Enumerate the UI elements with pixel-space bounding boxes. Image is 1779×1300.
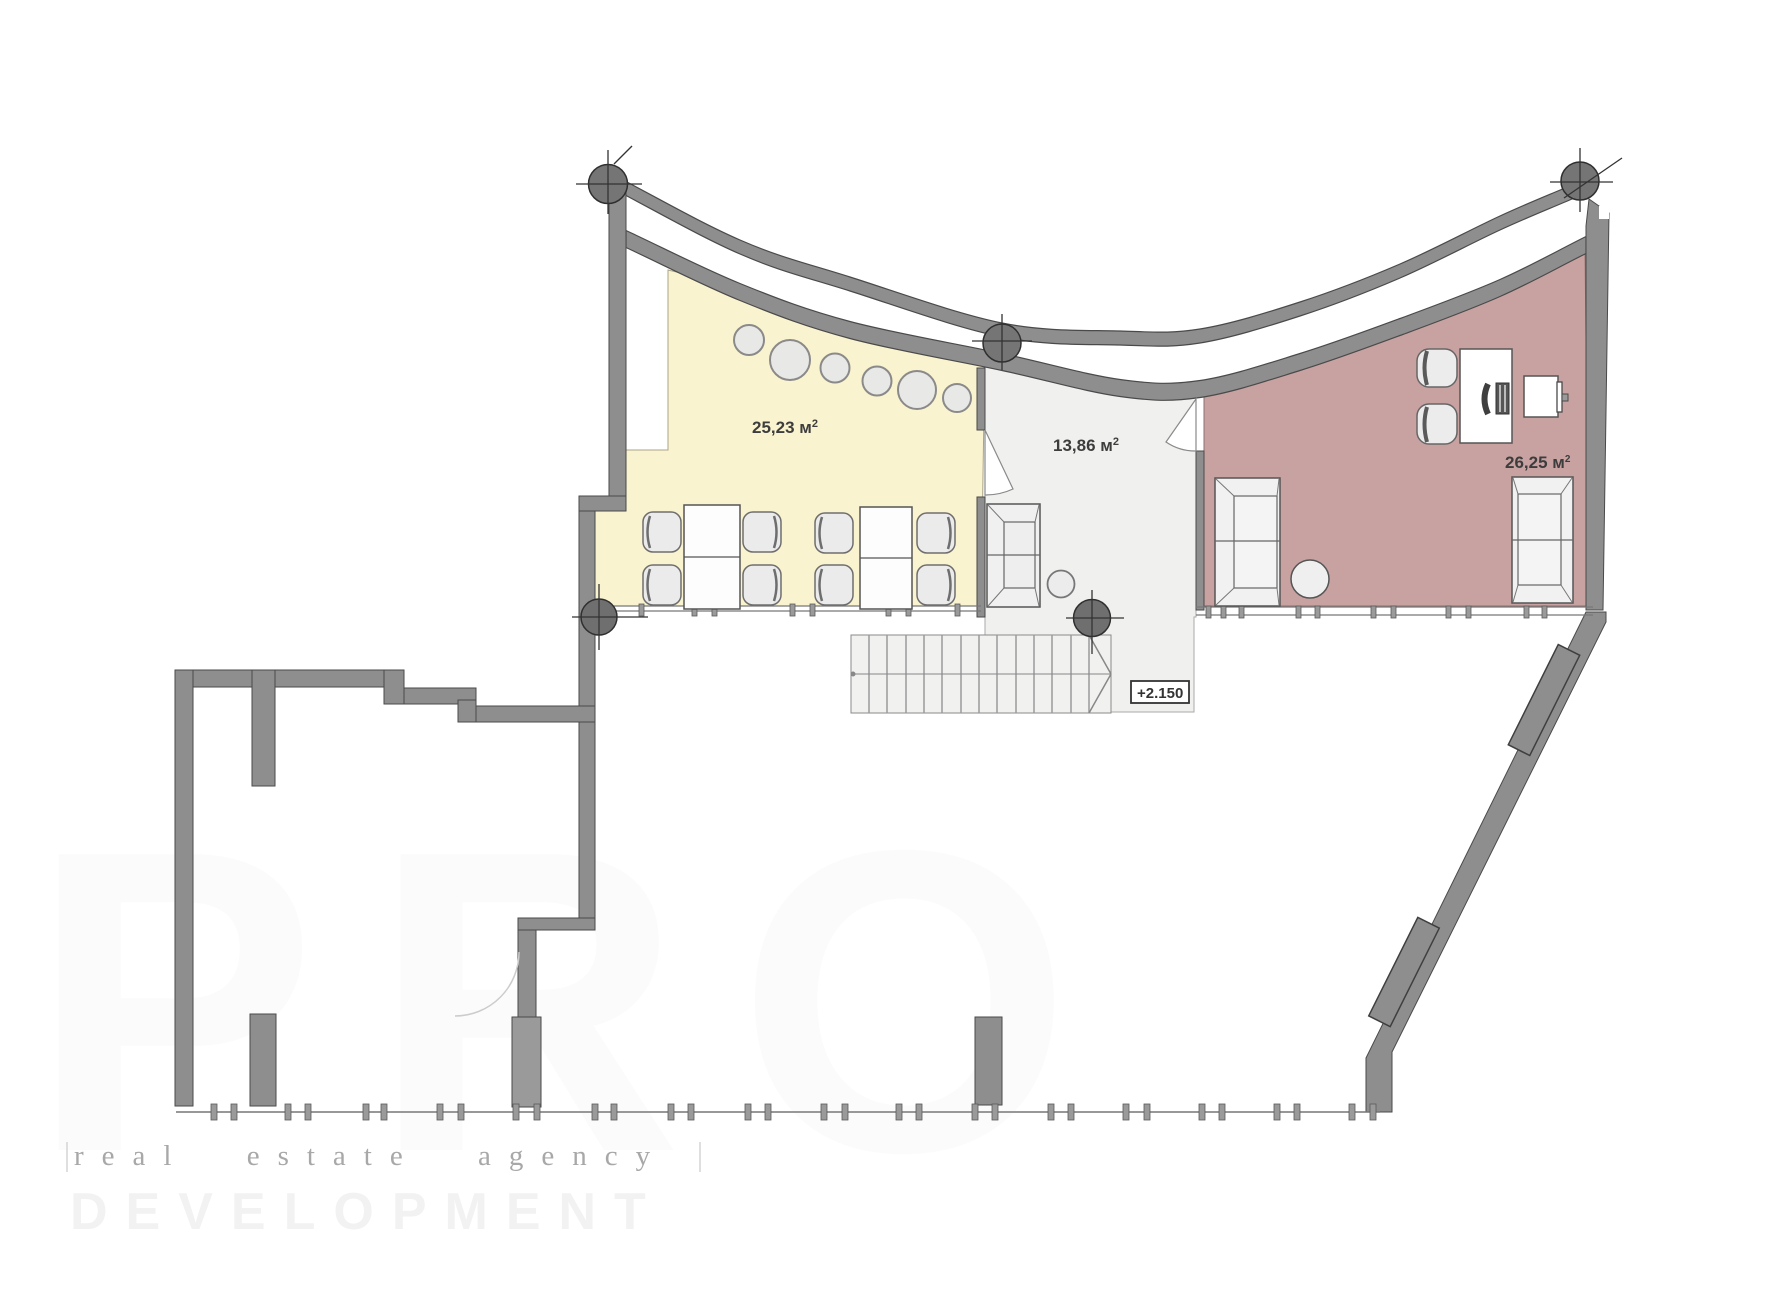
svg-text:+2.150: +2.150 (1137, 685, 1183, 702)
svg-text:DEVELOPMENT: DEVELOPMENT (70, 1183, 664, 1241)
svg-text:real estate agency: real estate agency (74, 1140, 668, 1172)
svg-text:25,23 м2: 25,23 м2 (752, 418, 818, 437)
svg-text:13,86 м2: 13,86 м2 (1053, 436, 1119, 455)
svg-text:26,25 м2: 26,25 м2 (1505, 453, 1571, 472)
